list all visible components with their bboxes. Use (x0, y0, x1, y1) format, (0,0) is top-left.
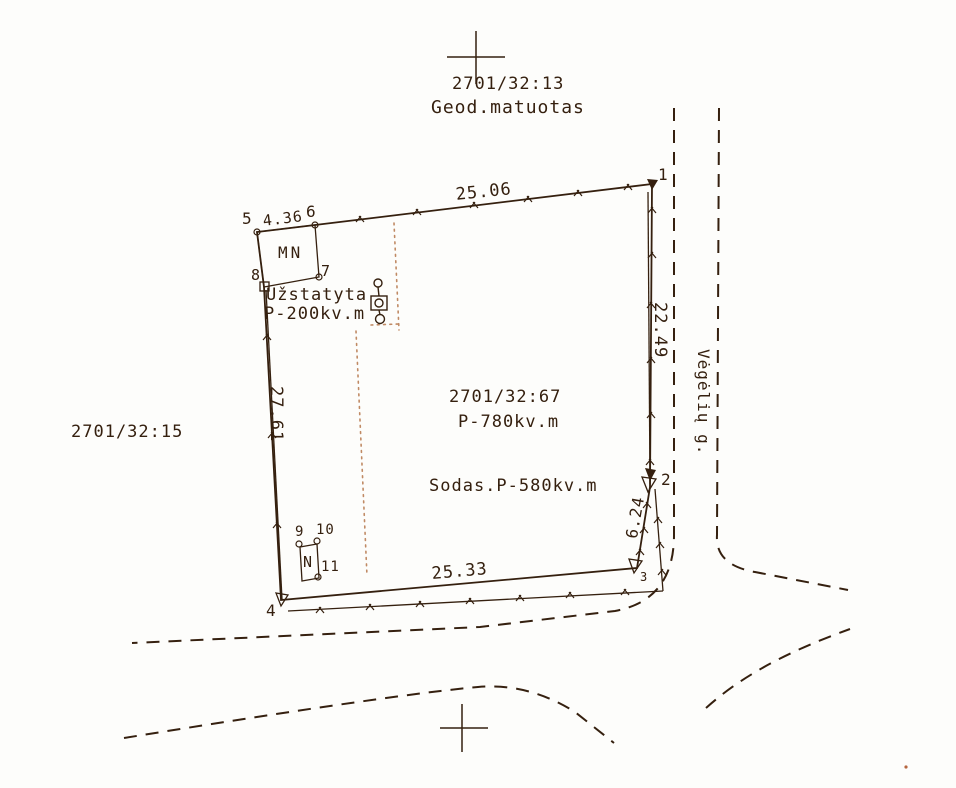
point-4-label: 4 (266, 603, 277, 619)
paper-speck (904, 765, 907, 768)
point-10-label: 10 (316, 523, 335, 537)
survey-note: Geod.matuotas (431, 99, 585, 117)
parcel-total-area: P-780kv.m (458, 414, 559, 431)
building-n-label: N (303, 555, 313, 570)
top-cadastral-number: 2701/32:13 (452, 76, 564, 93)
point-6-label: 6 (306, 204, 317, 220)
point-9-label: 9 (295, 525, 304, 539)
point-7-label: 7 (321, 264, 331, 279)
cadastral-plan: 2701/32:13 Geod.matuotas 2701/32:15 Vėgė… (0, 0, 956, 788)
survey-cross-bottom (440, 704, 488, 752)
built-up-area: P-200kv.m (264, 306, 365, 323)
point-2-label: 2 (661, 472, 672, 488)
dotted-division-lines (356, 223, 399, 576)
dimension-west: 27.61 (267, 386, 284, 442)
point-8-label: 8 (251, 268, 261, 283)
adjacent-parcel-number: 2701/32:15 (71, 424, 183, 441)
point-1-label: 1 (658, 167, 669, 183)
building-mn-label: MN (278, 245, 303, 261)
dimension-south: 25.33 (431, 561, 488, 583)
built-up-label: Užstatyta (266, 287, 367, 304)
point-2-marker (642, 477, 656, 492)
point-5-label: 5 (242, 211, 253, 227)
point-9-marker (296, 541, 302, 547)
parcel-cadastral-number: 2701/32:67 (449, 389, 561, 406)
utility-symbol (371, 279, 387, 324)
point-10-marker (314, 538, 320, 544)
point-11-label: 11 (321, 560, 340, 574)
street-name: Vėgėlių g. (695, 349, 711, 455)
dimension-east: 22.49 (651, 302, 668, 358)
garden-area-label: Sodas.P-580kv.m (429, 478, 598, 495)
point-3-label: 3 (640, 571, 648, 583)
